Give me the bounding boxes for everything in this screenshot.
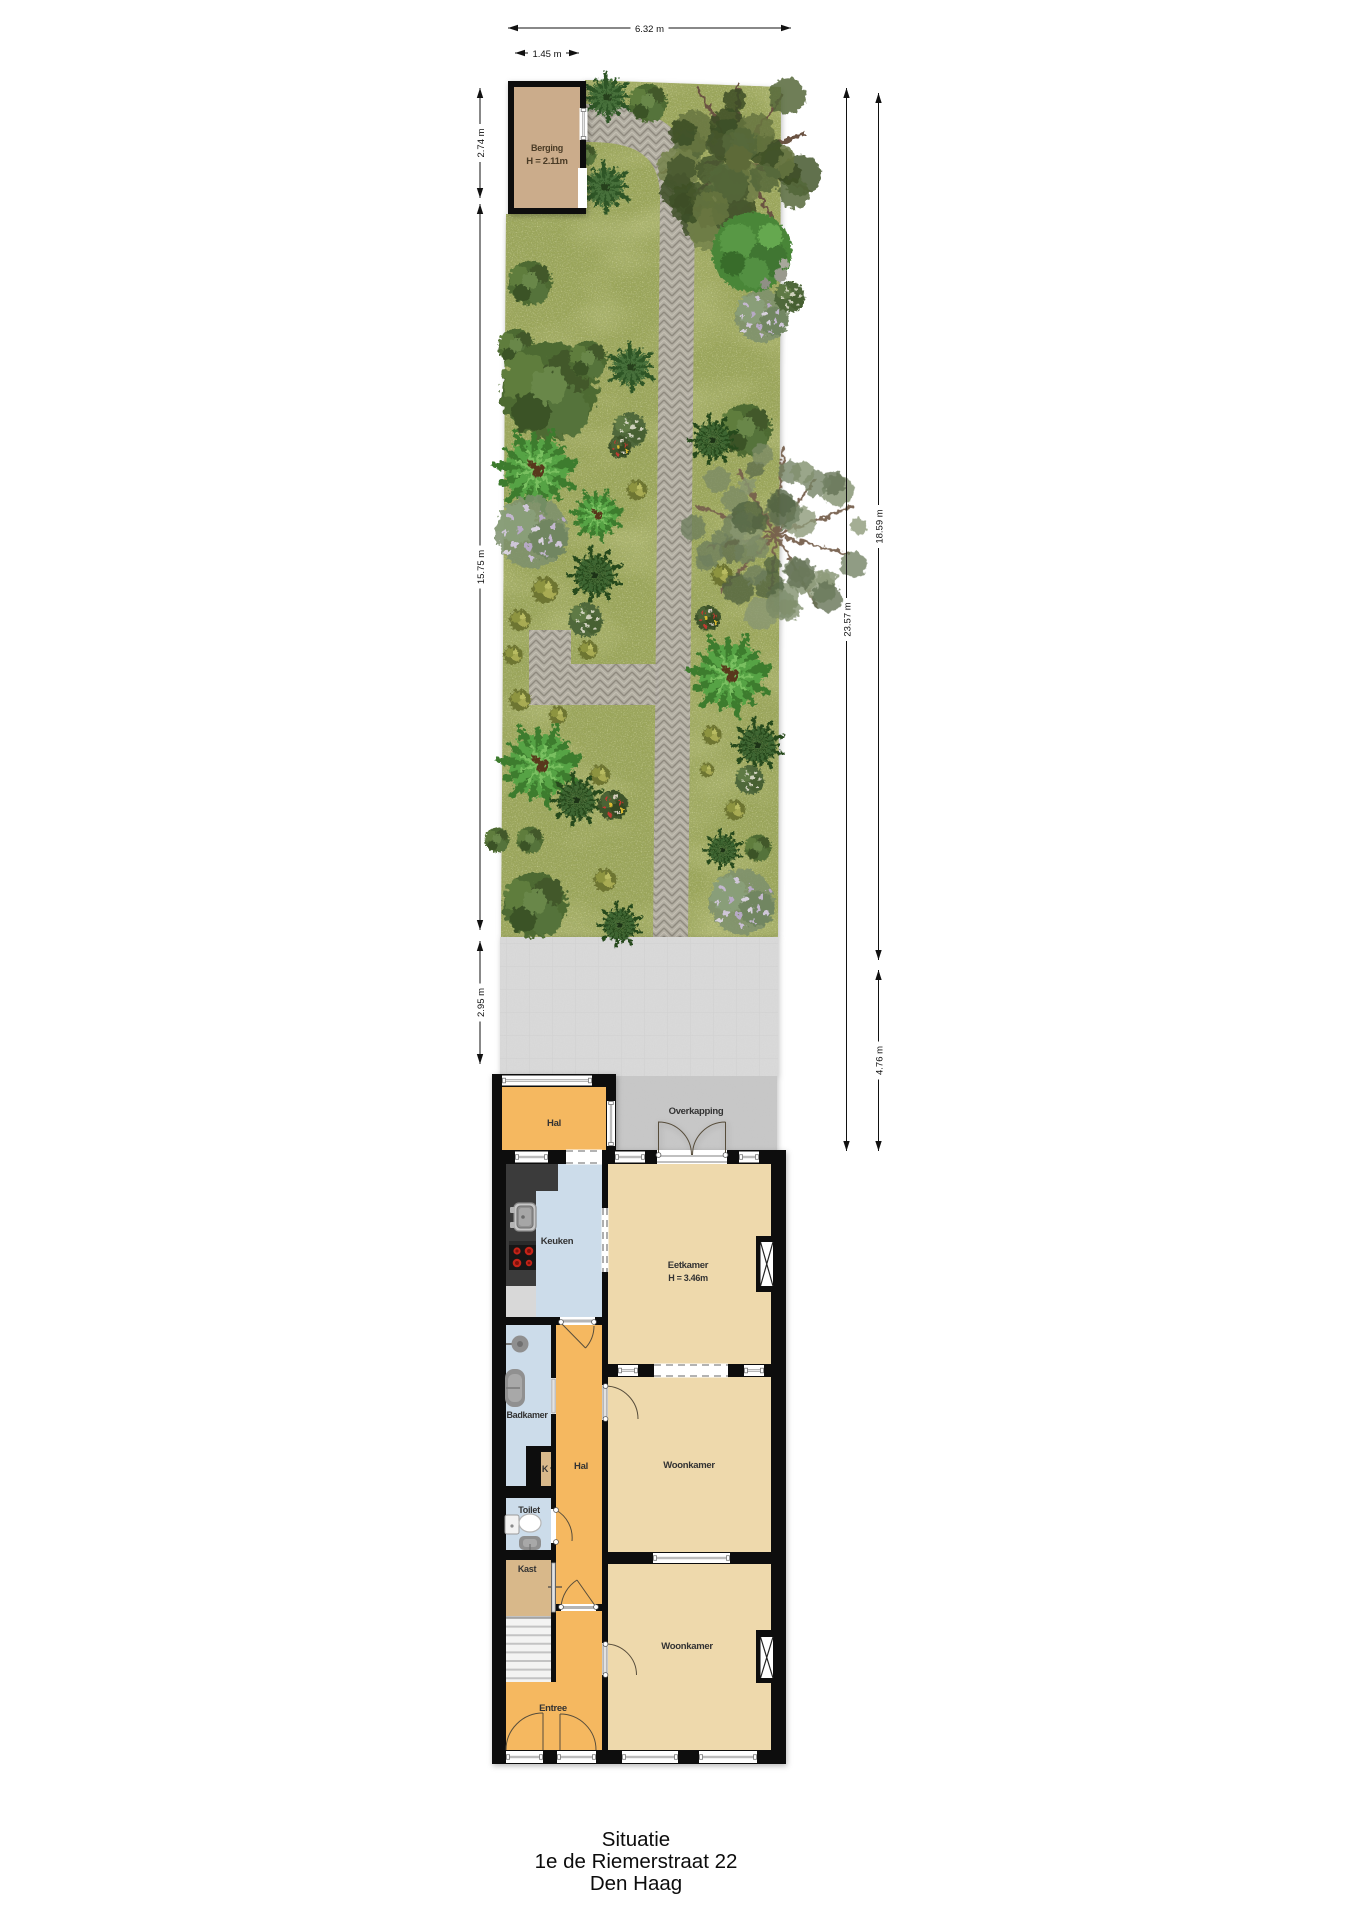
svg-text:18.59 m: 18.59 m (875, 509, 886, 543)
svg-text:Eetkamer: Eetkamer (668, 1260, 709, 1271)
svg-text:Woonkamer: Woonkamer (661, 1641, 713, 1652)
svg-text:1.45 m: 1.45 m (532, 49, 561, 60)
svg-text:1e de Riemerstraat 22: 1e de Riemerstraat 22 (535, 1850, 738, 1873)
svg-text:6.32 m: 6.32 m (635, 24, 664, 35)
svg-text:Badkamer: Badkamer (506, 1410, 548, 1420)
svg-text:Situatie: Situatie (602, 1828, 670, 1851)
svg-text:H = 2.11m: H = 2.11m (526, 156, 567, 167)
svg-text:Kast: Kast (518, 1564, 537, 1574)
svg-text:2.74 m: 2.74 m (476, 128, 487, 157)
svg-text:Entree: Entree (539, 1703, 567, 1714)
svg-text:K: K (542, 1464, 549, 1474)
svg-text:Berging: Berging (531, 143, 563, 153)
svg-text:4.76 m: 4.76 m (875, 1046, 886, 1075)
svg-text:Overkapping: Overkapping (669, 1106, 724, 1117)
svg-text:15.75 m: 15.75 m (476, 550, 487, 584)
svg-text:Woonkamer: Woonkamer (663, 1460, 715, 1471)
svg-text:Hal: Hal (547, 1118, 561, 1129)
svg-text:H = 3.46m: H = 3.46m (668, 1273, 708, 1283)
svg-text:2.95 m: 2.95 m (476, 988, 487, 1017)
svg-text:23.57 m: 23.57 m (843, 602, 854, 636)
svg-text:Den Haag: Den Haag (590, 1872, 682, 1895)
svg-text:Keuken: Keuken (541, 1236, 574, 1247)
svg-text:Hal: Hal (574, 1461, 588, 1472)
